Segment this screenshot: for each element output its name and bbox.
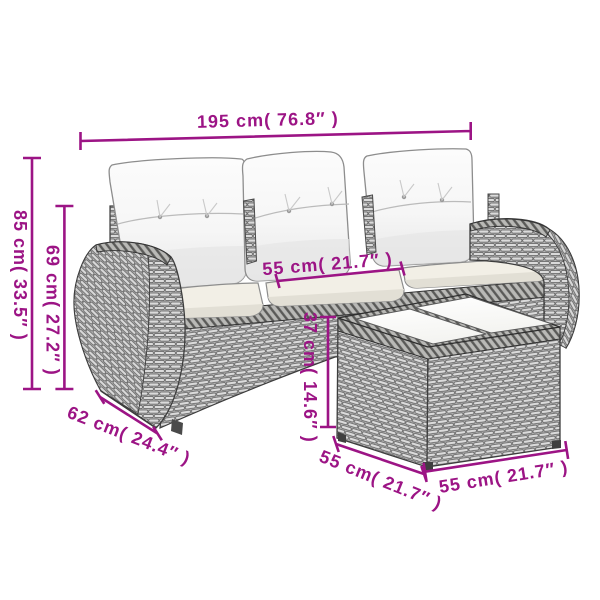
svg-text:69 cm( 27.2″ ): 69 cm( 27.2″ ) xyxy=(43,245,63,376)
svg-text:195 cm( 76.8″ ): 195 cm( 76.8″ ) xyxy=(197,108,339,132)
svg-text:85 cm( 33.5″ ): 85 cm( 33.5″ ) xyxy=(10,210,30,341)
svg-text:37 cm( 14.6″ ): 37 cm( 14.6″ ) xyxy=(300,312,320,443)
